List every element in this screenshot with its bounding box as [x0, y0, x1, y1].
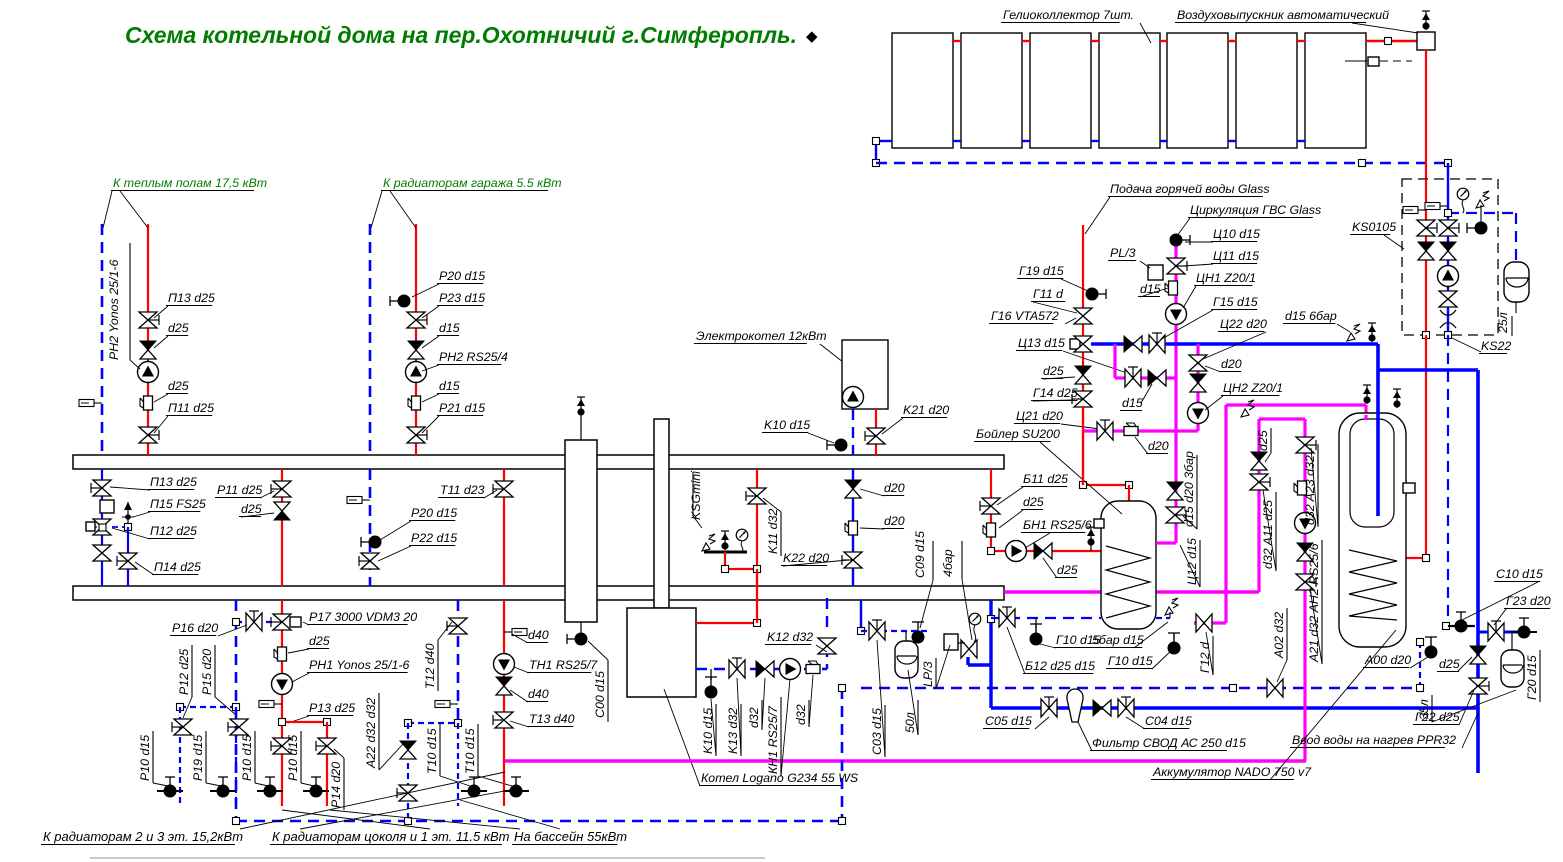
svg-text:Воздуховыпускник автоматически: Воздуховыпускник автоматический: [1177, 8, 1389, 22]
svg-text:P10 d15: P10 d15: [240, 735, 254, 781]
svg-text:P23 d15: P23 d15: [439, 291, 485, 305]
svg-text:LP/3: LP/3: [921, 661, 935, 687]
svg-text:К радиаторам цоколя и 1 эт. 11: К радиаторам цоколя и 1 эт. 11.5 кВт: [272, 829, 510, 844]
svg-text:P20 d15: P20 d15: [411, 506, 457, 520]
svg-text:Электрокотел 12кВт: Электрокотел 12кВт: [696, 329, 827, 343]
svg-text:Схема котельной дома на пер.Ох: Схема котельной дома на пер.Охотничий г.…: [125, 22, 797, 48]
svg-text:d15: d15: [439, 379, 460, 393]
svg-text:П11 d25: П11 d25: [168, 401, 214, 415]
svg-text:d15: d15: [1122, 396, 1143, 410]
svg-text:PH2 Yonos 25/1-6: PH2 Yonos 25/1-6: [107, 260, 121, 360]
svg-text:KS0105: KS0105: [1352, 220, 1396, 234]
svg-text:На бассейн 55кВт: На бассейн 55кВт: [514, 829, 627, 844]
svg-text:d25: d25: [168, 379, 189, 393]
svg-text:K10 d15: K10 d15: [764, 418, 810, 432]
svg-text:Г10 d15: Г10 d15: [1108, 654, 1153, 668]
svg-text:d25: d25: [309, 634, 330, 648]
svg-text:A22 d32 d32: A22 d32 d32: [364, 698, 378, 769]
svg-text:П13 d25: П13 d25: [150, 475, 197, 489]
svg-text:d25: d25: [241, 502, 262, 516]
svg-text:d40: d40: [528, 687, 549, 701]
svg-text:K22 d20: K22 d20: [783, 551, 829, 565]
svg-text:d20: d20: [1148, 439, 1169, 453]
svg-text:KSGmini: KSGmini: [689, 470, 703, 520]
svg-text:ЦН1 Z20/1: ЦН1 Z20/1: [1196, 271, 1256, 285]
svg-text:КН1 RS25/7: КН1 RS25/7: [766, 705, 780, 774]
svg-text:d15 d20 3бар: d15 d20 3бар: [1182, 451, 1196, 527]
svg-text:T10 d15: T10 d15: [425, 728, 439, 774]
svg-text:P13 d25: P13 d25: [309, 701, 355, 715]
svg-text:Г22 d25: Г22 d25: [1415, 710, 1460, 724]
svg-text:PL/3: PL/3: [1110, 246, 1136, 260]
svg-text:KS22: KS22: [1481, 339, 1511, 353]
svg-text:Г15 d15: Г15 d15: [1213, 295, 1258, 309]
svg-text:d20: d20: [884, 481, 905, 495]
svg-text:P20 d15: P20 d15: [439, 269, 485, 283]
svg-text:БН1 RS25/6: БН1 RS25/6: [1023, 518, 1092, 532]
svg-text:Г20 d15: Г20 d15: [1525, 655, 1539, 700]
svg-text:Б12 d25 d15: Б12 d25 d15: [1025, 659, 1095, 673]
svg-text:d25: d25: [1023, 495, 1044, 509]
svg-text:Ц11 d15: Ц11 d15: [1213, 249, 1259, 263]
svg-text:d20: d20: [884, 514, 905, 528]
svg-text:Ц12 d15: Ц12 d15: [1185, 538, 1199, 585]
svg-text:d15: d15: [439, 321, 460, 335]
svg-text:Г11 d: Г11 d: [1033, 287, 1064, 301]
svg-text:d25: d25: [1057, 563, 1078, 577]
svg-text:A02 d32: A02 d32: [1272, 612, 1286, 659]
svg-text:T10 d15: T10 d15: [463, 728, 477, 774]
svg-text:К теплым полам 17,5 кВт: К теплым полам 17,5 кВт: [113, 176, 267, 190]
svg-text:d25: d25: [168, 321, 189, 335]
svg-text:5бар d15: 5бар d15: [1092, 633, 1144, 647]
svg-text:Б11 d25: Б11 d25: [1023, 472, 1068, 486]
svg-text:P10 d15: P10 d15: [286, 735, 300, 781]
svg-text:Ц21 d20: Ц21 d20: [1016, 409, 1063, 423]
svg-text:P14 d20: P14 d20: [329, 762, 343, 808]
svg-text:P21 d15: P21 d15: [439, 401, 485, 415]
svg-text:d25: d25: [1043, 364, 1064, 378]
svg-text:T11 d23: T11 d23: [440, 483, 485, 497]
svg-text:Г19 d15: Г19 d15: [1019, 264, 1064, 278]
svg-text:T13 d40: T13 d40: [529, 712, 575, 726]
svg-text:Гелиоколлектор 7шт.: Гелиоколлектор 7шт.: [1003, 8, 1134, 22]
svg-text:Ц10 d15: Ц10 d15: [1213, 227, 1260, 241]
svg-text:Ввод воды на нагрев PPR32: Ввод воды на нагрев PPR32: [1292, 733, 1456, 747]
svg-text:Ц22 d20: Ц22 d20: [1220, 317, 1267, 331]
svg-text:K11 d32: K11 d32: [766, 509, 780, 554]
svg-text:П15 FS25: П15 FS25: [150, 497, 206, 511]
svg-text:TH1 RS25/7: TH1 RS25/7: [529, 658, 598, 672]
svg-text:T12 d40: T12 d40: [423, 643, 437, 689]
svg-text:d20: d20: [1221, 357, 1242, 371]
svg-text:d15 6бар: d15 6бар: [1285, 309, 1337, 323]
svg-text:PH2 RS25/4: PH2 RS25/4: [439, 350, 508, 364]
svg-text:P22 d15: P22 d15: [411, 531, 457, 545]
svg-text:Г14 d25: Г14 d25: [1033, 386, 1078, 400]
svg-text:PH1 Yonos 25/1-6: PH1 Yonos 25/1-6: [309, 658, 409, 672]
svg-text:K12 d32: K12 d32: [767, 630, 813, 644]
svg-text:4бар: 4бар: [941, 549, 955, 577]
svg-text:P16 d20: P16 d20: [172, 621, 218, 635]
svg-text:П12 d25: П12 d25: [150, 524, 197, 538]
svg-text:C05 d15: C05 d15: [985, 714, 1032, 728]
svg-text:d25: d25: [1439, 657, 1460, 671]
svg-text:K13 d32: K13 d32: [726, 708, 740, 754]
svg-text:P11 d25: P11 d25: [217, 483, 262, 497]
svg-text:K10 d15: K10 d15: [701, 708, 715, 754]
svg-text:ЦН2 Z20/1: ЦН2 Z20/1: [1223, 381, 1283, 395]
svg-text:P12 d25: P12 d25: [177, 649, 191, 695]
svg-text:K21 d20: K21 d20: [903, 403, 949, 417]
svg-text:C00 d15: C00 d15: [593, 671, 607, 718]
svg-text:Г23 d20: Г23 d20: [1506, 594, 1551, 608]
svg-text:П14 d25: П14 d25: [154, 560, 201, 574]
svg-text:P15 d20: P15 d20: [200, 649, 214, 695]
svg-text:Г16 VTA572: Г16 VTA572: [991, 309, 1059, 323]
svg-text:d40: d40: [528, 628, 549, 642]
svg-text:d32: d32: [747, 707, 761, 728]
svg-text:P19 d15: P19 d15: [191, 735, 205, 781]
svg-text:P10 d15: P10 d15: [138, 735, 152, 781]
svg-text:d25: d25: [1256, 430, 1270, 451]
svg-text:d32 A11 d25: d32 A11 d25: [1261, 500, 1275, 569]
svg-text:Аккумулятор NADO 750 v7: Аккумулятор NADO 750 v7: [1152, 765, 1312, 779]
svg-text:C04 d15: C04 d15: [1145, 714, 1192, 728]
svg-text:К радиаторам гаража 5.5 кВт: К радиаторам гаража 5.5 кВт: [383, 176, 562, 190]
svg-text:C09 d15: C09 d15: [913, 531, 927, 578]
svg-text:P17 3000 VDM3 20: P17 3000 VDM3 20: [309, 610, 417, 624]
svg-text:◆: ◆: [806, 28, 818, 45]
svg-text:Подача горячей воды Glass: Подача горячей воды Glass: [1110, 182, 1270, 196]
svg-text:Бойлер SU200: Бойлер SU200: [976, 427, 1060, 441]
svg-text:d32: d32: [794, 704, 808, 725]
svg-text:Ц13 d15: Ц13 d15: [1018, 336, 1065, 350]
svg-text:C10 d15: C10 d15: [1496, 567, 1543, 581]
svg-text:П13 d25: П13 d25: [168, 291, 215, 305]
svg-text:25л: 25л: [1496, 312, 1510, 334]
svg-text:Фильтр СВОД АС 250 d15: Фильтр СВОД АС 250 d15: [1092, 736, 1246, 750]
svg-text:К радиаторам 2 и 3 эт. 15,2кВт: К радиаторам 2 и 3 эт. 15,2кВт: [43, 829, 243, 844]
svg-text:Циркуляция ГВС Glass: Циркуляция ГВС Glass: [1190, 203, 1321, 217]
